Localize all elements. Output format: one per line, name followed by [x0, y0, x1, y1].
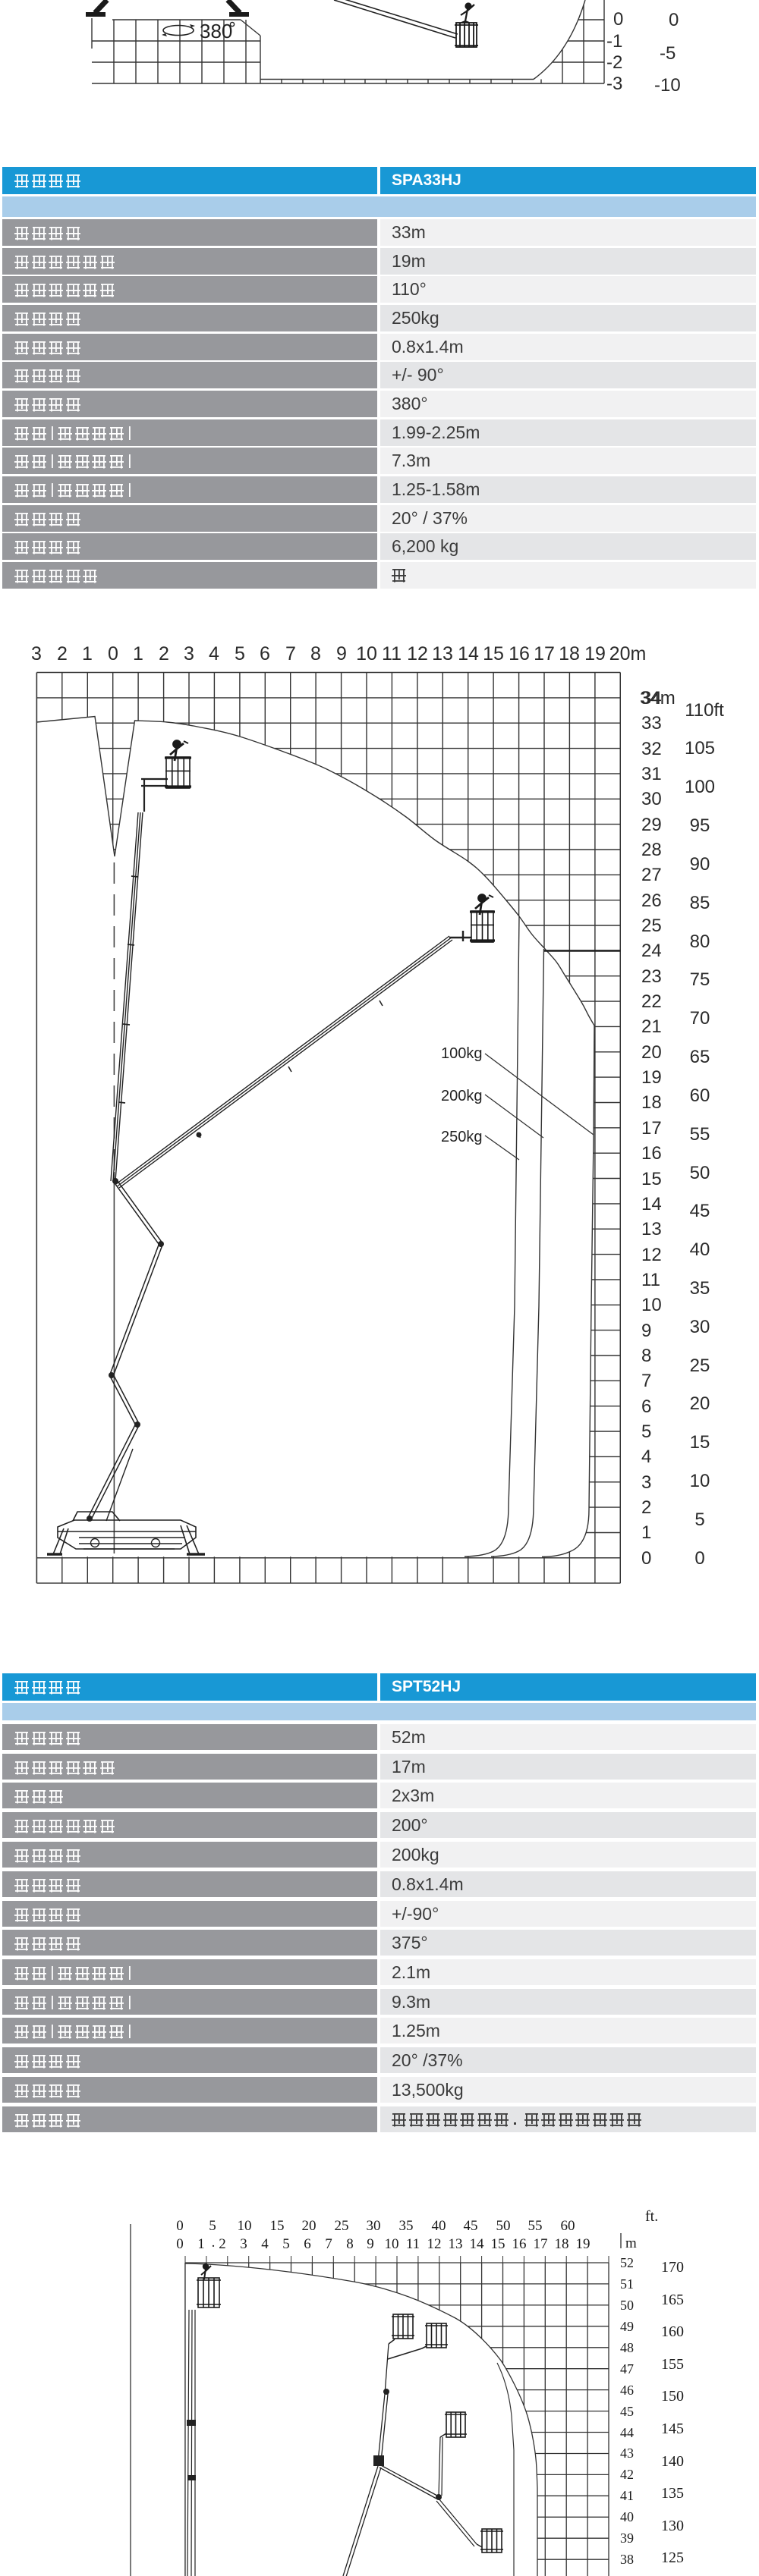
- svg-text:29: 29: [641, 815, 662, 835]
- svg-text:10: 10: [238, 2218, 252, 2234]
- svg-text:16: 16: [512, 2236, 527, 2252]
- svg-text:17: 17: [534, 643, 555, 664]
- svg-text:13: 13: [432, 643, 453, 664]
- svg-text:3: 3: [641, 1472, 651, 1493]
- svg-text:45: 45: [690, 1201, 710, 1221]
- svg-text:12: 12: [407, 643, 428, 664]
- svg-text:17: 17: [641, 1118, 662, 1139]
- svg-text:8: 8: [310, 643, 321, 664]
- svg-text:50: 50: [690, 1163, 710, 1183]
- svg-text:15: 15: [690, 1432, 710, 1453]
- svg-text:2: 2: [159, 643, 169, 664]
- svg-text:140: 140: [661, 2453, 684, 2470]
- svg-text:20: 20: [690, 1393, 710, 1414]
- svg-text:70: 70: [690, 1008, 710, 1029]
- svg-text:100kg: 100kg: [441, 1045, 483, 1062]
- svg-text:11: 11: [641, 1270, 660, 1290]
- svg-text:3: 3: [184, 643, 194, 664]
- svg-text:145: 145: [661, 2420, 684, 2437]
- svg-text:19: 19: [576, 2236, 591, 2252]
- svg-text:40: 40: [432, 2218, 446, 2234]
- svg-text:0: 0: [176, 2218, 184, 2234]
- svg-text:7: 7: [641, 1371, 651, 1391]
- svg-text:5: 5: [235, 643, 245, 664]
- svg-text:15: 15: [270, 2218, 285, 2234]
- svg-text:16: 16: [641, 1143, 662, 1164]
- svg-text:2: 2: [219, 2236, 226, 2252]
- svg-text:24: 24: [641, 941, 662, 961]
- svg-text:6: 6: [260, 643, 270, 664]
- svg-text:105: 105: [685, 738, 715, 759]
- svg-text:19: 19: [641, 1067, 662, 1088]
- svg-text:4: 4: [261, 2236, 269, 2252]
- svg-text:15: 15: [491, 2236, 505, 2252]
- svg-text:7: 7: [325, 2236, 332, 2252]
- svg-text:46: 46: [620, 2383, 634, 2398]
- svg-text:40: 40: [620, 2509, 634, 2524]
- svg-text:150: 150: [661, 2388, 684, 2405]
- svg-text:7: 7: [285, 643, 296, 664]
- svg-text:27: 27: [641, 865, 662, 885]
- svg-text:32: 32: [641, 739, 662, 759]
- svg-text:52: 52: [620, 2255, 634, 2270]
- svg-text:1: 1: [197, 2236, 205, 2252]
- svg-text:ft.: ft.: [645, 2208, 658, 2225]
- svg-text:44: 44: [620, 2425, 634, 2440]
- svg-text:65: 65: [690, 1047, 710, 1067]
- svg-text:20: 20: [302, 2218, 317, 2234]
- svg-text:8: 8: [641, 1346, 651, 1366]
- svg-text:160: 160: [661, 2323, 684, 2340]
- svg-text:28: 28: [641, 840, 662, 860]
- svg-text:30: 30: [641, 789, 662, 809]
- svg-text:42: 42: [620, 2467, 634, 2482]
- svg-text:0: 0: [613, 9, 623, 30]
- svg-text:20: 20: [641, 1042, 662, 1063]
- svg-text:14: 14: [641, 1194, 662, 1214]
- svg-text:5: 5: [694, 1509, 704, 1530]
- svg-text:30: 30: [367, 2218, 381, 2234]
- svg-text:12: 12: [427, 2236, 442, 2252]
- svg-text:8: 8: [346, 2236, 354, 2252]
- svg-text:75: 75: [690, 969, 710, 990]
- svg-text:3: 3: [31, 643, 42, 664]
- svg-text:15: 15: [641, 1169, 662, 1189]
- svg-text:45: 45: [620, 2404, 634, 2419]
- svg-text:100: 100: [685, 777, 715, 797]
- svg-text:95: 95: [690, 815, 710, 836]
- svg-text:250kg: 250kg: [441, 1129, 483, 1145]
- svg-text:13: 13: [641, 1219, 662, 1239]
- svg-text:9: 9: [336, 643, 347, 664]
- svg-text:43: 43: [620, 2446, 634, 2461]
- svg-text:13: 13: [449, 2236, 463, 2252]
- svg-text:45: 45: [464, 2218, 478, 2234]
- svg-text:0: 0: [669, 10, 679, 30]
- svg-text:125: 125: [661, 2549, 684, 2566]
- svg-text:170: 170: [661, 2259, 684, 2276]
- svg-text:110ft: 110ft: [685, 700, 724, 721]
- svg-text:85: 85: [690, 893, 710, 913]
- svg-text:20m: 20m: [609, 643, 647, 664]
- svg-text:80: 80: [690, 931, 710, 952]
- svg-text:33: 33: [641, 713, 662, 734]
- svg-text:130: 130: [661, 2518, 684, 2534]
- svg-text:26: 26: [641, 891, 662, 911]
- svg-text:.: .: [212, 2235, 216, 2251]
- svg-text:18: 18: [641, 1092, 662, 1113]
- svg-text:5: 5: [641, 1422, 651, 1442]
- svg-text:22: 22: [641, 991, 662, 1012]
- svg-text:51: 51: [620, 2276, 634, 2292]
- svg-text:38: 38: [620, 2552, 634, 2567]
- svg-text:m: m: [625, 2235, 637, 2251]
- svg-text:3: 3: [240, 2236, 247, 2252]
- svg-text:6: 6: [304, 2236, 311, 2252]
- svg-text:10: 10: [356, 643, 377, 664]
- svg-text:25: 25: [690, 1356, 710, 1376]
- svg-text:9: 9: [367, 2236, 374, 2252]
- svg-text:30: 30: [690, 1317, 710, 1337]
- svg-text:10: 10: [690, 1471, 710, 1491]
- svg-text:47: 47: [620, 2361, 634, 2377]
- svg-text:48: 48: [620, 2340, 634, 2355]
- svg-text:18: 18: [555, 2236, 569, 2252]
- svg-text:1: 1: [641, 1522, 651, 1543]
- svg-text:35: 35: [399, 2218, 414, 2234]
- svg-text:40: 40: [690, 1239, 710, 1260]
- svg-text:11: 11: [382, 643, 402, 664]
- svg-text:55: 55: [690, 1124, 710, 1145]
- svg-text:-5: -5: [660, 43, 676, 64]
- svg-text:35: 35: [690, 1278, 710, 1299]
- svg-text:1: 1: [82, 643, 93, 664]
- svg-text:18: 18: [559, 643, 580, 664]
- svg-text:2: 2: [57, 643, 68, 664]
- svg-text:49: 49: [620, 2319, 634, 2334]
- svg-text:10: 10: [385, 2236, 399, 2252]
- svg-text:0: 0: [108, 643, 118, 664]
- svg-text:16: 16: [509, 643, 530, 664]
- svg-text:4: 4: [209, 643, 219, 664]
- svg-text:-10: -10: [654, 75, 681, 96]
- svg-text:2: 2: [641, 1497, 651, 1518]
- svg-text:90: 90: [690, 854, 710, 875]
- svg-text:-3: -3: [606, 74, 622, 94]
- svg-text:50: 50: [620, 2298, 634, 2313]
- svg-text:39: 39: [620, 2530, 634, 2546]
- svg-text:0: 0: [641, 1548, 651, 1569]
- svg-text:19: 19: [584, 643, 606, 664]
- svg-text:1: 1: [133, 643, 143, 664]
- svg-text:60: 60: [690, 1085, 710, 1106]
- svg-text:15: 15: [483, 643, 504, 664]
- svg-text:165: 165: [661, 2292, 684, 2308]
- svg-text:380: 380: [200, 20, 232, 42]
- svg-text:25: 25: [641, 916, 662, 936]
- svg-text:21: 21: [641, 1016, 662, 1037]
- svg-text:5: 5: [282, 2236, 290, 2252]
- svg-text:11: 11: [406, 2236, 420, 2252]
- svg-text:0: 0: [694, 1548, 704, 1569]
- svg-text:55: 55: [528, 2218, 543, 2234]
- svg-text:-2: -2: [606, 52, 622, 73]
- svg-text:-1: -1: [606, 31, 622, 52]
- svg-text:34m: 34m: [640, 688, 676, 708]
- svg-text:9: 9: [641, 1321, 651, 1341]
- svg-text:10: 10: [641, 1295, 662, 1315]
- svg-text:41: 41: [620, 2488, 634, 2503]
- svg-text:23: 23: [641, 966, 662, 987]
- svg-text:12: 12: [641, 1245, 662, 1265]
- svg-text:4: 4: [641, 1447, 651, 1467]
- svg-text:5: 5: [209, 2218, 216, 2234]
- svg-text:14: 14: [470, 2236, 485, 2252]
- svg-text:25: 25: [335, 2218, 349, 2234]
- svg-text:31: 31: [641, 764, 662, 784]
- svg-text:14: 14: [458, 643, 479, 664]
- svg-text:135: 135: [661, 2485, 684, 2502]
- svg-text:155: 155: [661, 2356, 684, 2373]
- svg-text:0: 0: [176, 2236, 184, 2252]
- svg-text:6: 6: [641, 1396, 651, 1417]
- svg-text:60: 60: [561, 2218, 575, 2234]
- svg-text:50: 50: [496, 2218, 511, 2234]
- svg-text:200kg: 200kg: [441, 1088, 483, 1104]
- svg-text:17: 17: [534, 2236, 548, 2252]
